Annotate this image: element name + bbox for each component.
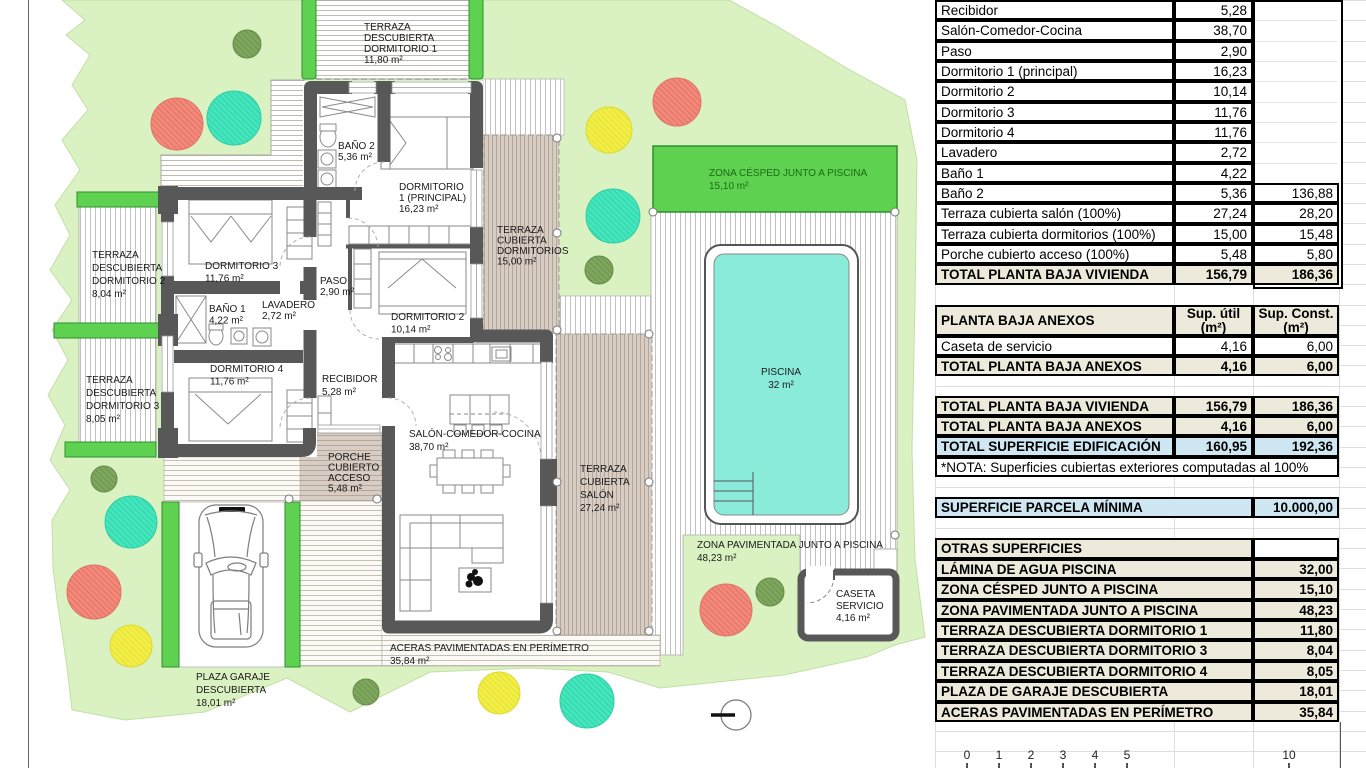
svg-text:48,23 m²: 48,23 m² bbox=[697, 553, 737, 564]
svg-text:5,28 m²: 5,28 m² bbox=[322, 387, 357, 398]
svg-text:8,05 m²: 8,05 m² bbox=[86, 414, 121, 425]
svg-text:SALÓN: SALÓN bbox=[580, 488, 614, 501]
svg-text:4,16 m²: 4,16 m² bbox=[836, 613, 871, 624]
svg-text:8,04 m²: 8,04 m² bbox=[92, 289, 127, 300]
svg-text:LAVADERO: LAVADERO bbox=[262, 300, 315, 311]
svg-text:ZONA PAVIMENTADA JUNTO A PISCI: ZONA PAVIMENTADA JUNTO A PISCINA bbox=[697, 540, 883, 551]
svg-text:ZONA CÉSPED JUNTO A PISCINA: ZONA CÉSPED JUNTO A PISCINA bbox=[709, 166, 868, 179]
svg-text:DORMITORIO 1: DORMITORIO 1 bbox=[364, 44, 438, 55]
svg-text:DORMITORIO 2: DORMITORIO 2 bbox=[92, 276, 166, 287]
svg-text:TERRAZA: TERRAZA bbox=[364, 22, 411, 33]
svg-text:27,24 m²: 27,24 m² bbox=[580, 503, 620, 514]
svg-text:SALÓN-COMEDOR-COCINA: SALÓN-COMEDOR-COCINA bbox=[409, 427, 541, 440]
svg-text:15,10 m²: 15,10 m² bbox=[709, 181, 749, 192]
svg-text:DORMITORIO 2: DORMITORIO 2 bbox=[391, 312, 465, 323]
svg-text:TERRAZA: TERRAZA bbox=[92, 250, 139, 261]
svg-text:PASO: PASO bbox=[320, 276, 347, 287]
svg-text:2,90 m²: 2,90 m² bbox=[320, 287, 355, 298]
svg-text:DORMITORIO 3: DORMITORIO 3 bbox=[86, 401, 160, 412]
svg-text:DESCUBIERTA: DESCUBIERTA bbox=[86, 388, 157, 399]
svg-text:ACERAS PAVIMENTADAS EN PERÍMET: ACERAS PAVIMENTADAS EN PERÍMETRO bbox=[390, 641, 589, 654]
svg-text:CUBIERTA: CUBIERTA bbox=[497, 236, 547, 247]
svg-text:DESCUBIERTA: DESCUBIERTA bbox=[92, 263, 163, 274]
svg-text:1 (PRINCIPAL): 1 (PRINCIPAL) bbox=[399, 193, 466, 204]
svg-text:BAÑO 1: BAÑO 1 bbox=[209, 302, 246, 315]
svg-text:PLAZA GARAJE: PLAZA GARAJE bbox=[196, 672, 270, 683]
svg-text:CASETA: CASETA bbox=[836, 589, 876, 600]
svg-text:15,00 m²: 15,00 m² bbox=[497, 257, 537, 268]
svg-text:RECIBIDOR: RECIBIDOR bbox=[322, 374, 378, 385]
svg-text:CUBIERTO: CUBIERTO bbox=[328, 463, 380, 474]
svg-text:SERVICIO: SERVICIO bbox=[836, 601, 884, 612]
svg-text:18,01 m²: 18,01 m² bbox=[196, 698, 236, 709]
svg-text:5,36 m²: 5,36 m² bbox=[338, 152, 373, 163]
svg-text:DORMITORIO: DORMITORIO bbox=[399, 182, 464, 193]
svg-text:BAÑO 2: BAÑO 2 bbox=[338, 139, 375, 152]
svg-text:16,23 m²: 16,23 m² bbox=[399, 204, 439, 215]
svg-text:38,70 m²: 38,70 m² bbox=[409, 442, 449, 453]
svg-text:11,80 m²: 11,80 m² bbox=[364, 55, 403, 66]
svg-text:11,76 m²: 11,76 m² bbox=[210, 377, 249, 388]
svg-text:CUBIERTA: CUBIERTA bbox=[580, 477, 630, 488]
svg-text:2,72 m²: 2,72 m² bbox=[262, 311, 297, 322]
svg-text:DESCUBIERTA: DESCUBIERTA bbox=[364, 33, 435, 44]
svg-text:DORMITORIOS: DORMITORIOS bbox=[497, 246, 569, 257]
svg-text:35,84 m²: 35,84 m² bbox=[390, 656, 430, 667]
svg-text:TERRAZA: TERRAZA bbox=[497, 225, 544, 236]
svg-text:11,76 m²: 11,76 m² bbox=[205, 274, 244, 285]
svg-text:DESCUBIERTA: DESCUBIERTA bbox=[196, 685, 267, 696]
svg-text:5,48 m²: 5,48 m² bbox=[328, 484, 363, 495]
svg-text:10,14 m²: 10,14 m² bbox=[391, 325, 431, 336]
svg-text:TERRAZA: TERRAZA bbox=[86, 375, 133, 386]
svg-text:TERRAZA: TERRAZA bbox=[580, 464, 627, 475]
svg-text:PORCHE: PORCHE bbox=[328, 452, 371, 463]
svg-text:32 m²: 32 m² bbox=[768, 380, 794, 391]
svg-text:4,22 m²: 4,22 m² bbox=[209, 316, 244, 327]
svg-text:DORMITORIO 3: DORMITORIO 3 bbox=[205, 261, 279, 272]
svg-text:PISCINA: PISCINA bbox=[761, 367, 801, 378]
svg-text:DORMITORIO 4: DORMITORIO 4 bbox=[210, 364, 284, 375]
svg-text:ACCESO: ACCESO bbox=[328, 473, 370, 484]
